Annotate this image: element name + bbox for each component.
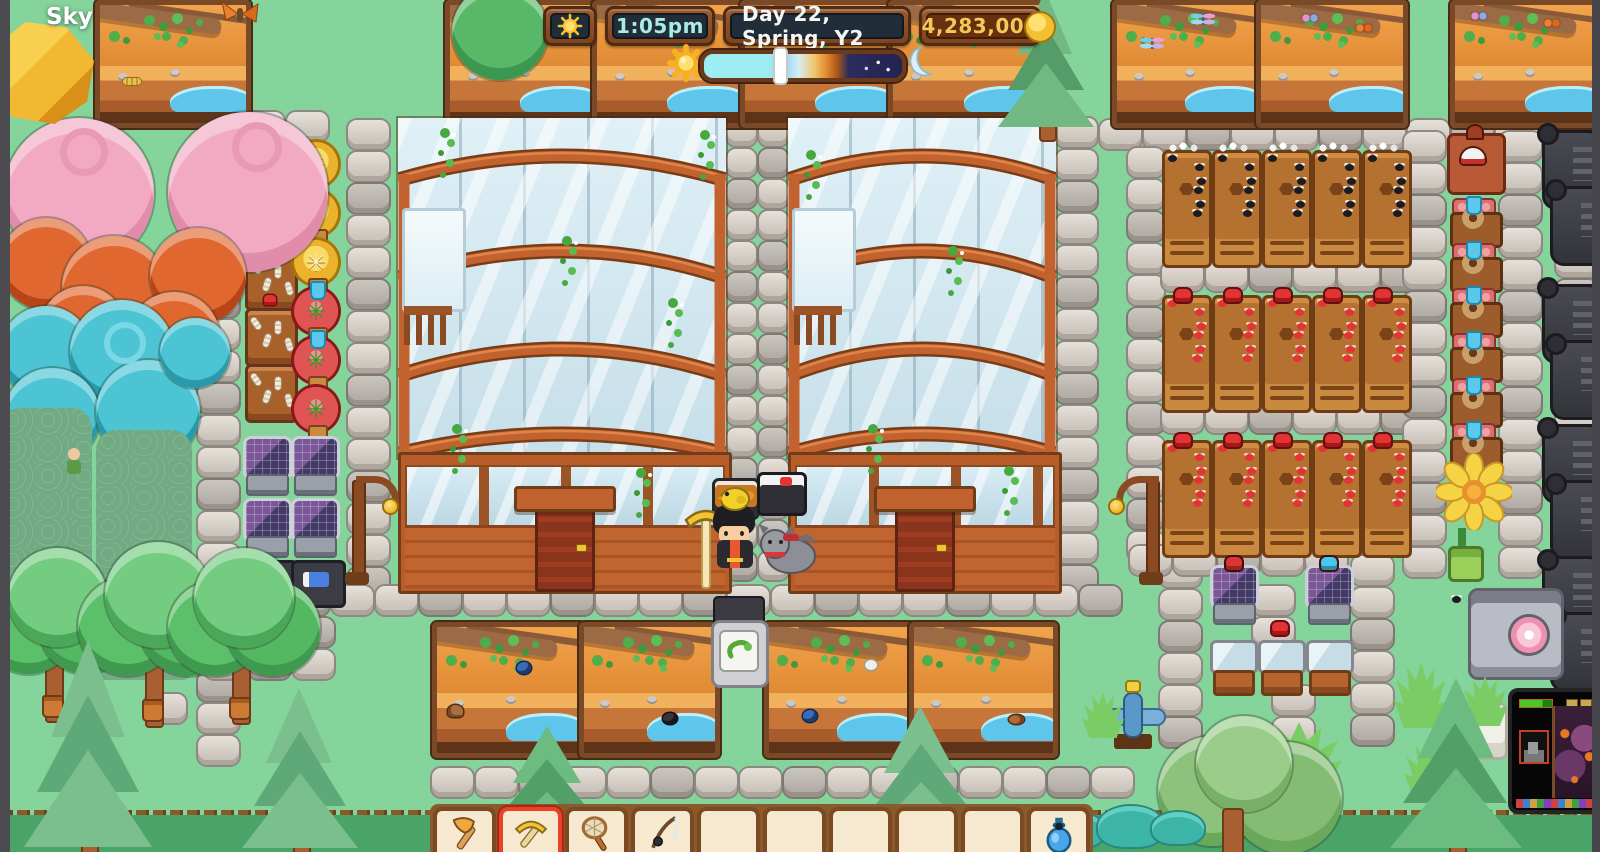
glass-table[interactable] [1258, 640, 1306, 698]
hive-slat [1220, 386, 1254, 390]
fly-icon [1394, 187, 1403, 194]
stone-tile [1352, 556, 1393, 585]
hotbar-slot-6[interactable] [763, 807, 826, 852]
red-bee-icon [1346, 346, 1355, 353]
stone-tile [1500, 324, 1541, 353]
ivy-vine [636, 468, 646, 478]
bird-companion[interactable] [716, 484, 752, 511]
leaf-decor [1160, 15, 1171, 26]
red-bee-icon [1375, 434, 1391, 447]
fly-icon [1197, 178, 1206, 185]
bee-box[interactable] [1212, 150, 1262, 268]
red-bee-icon [1197, 323, 1206, 330]
water-decor [520, 86, 601, 112]
drip-connector [1466, 286, 1482, 305]
hive-slat [1370, 531, 1404, 535]
dragonfly-icon [1191, 12, 1215, 26]
door-handle [936, 544, 947, 552]
greenhouse-door[interactable] [535, 504, 595, 592]
bug-net-icon [577, 814, 617, 852]
stone-tile [1056, 406, 1097, 435]
hotbar-slot-9[interactable] [961, 807, 1024, 852]
bug-icon [1226, 557, 1242, 570]
stone-tile [1056, 502, 1097, 531]
hotbar-slot-3-bug-net[interactable] [565, 807, 628, 852]
terrarium[interactable] [1256, 0, 1408, 128]
hotbar-slot-4-fishing-rod[interactable] [631, 807, 694, 852]
stone-tile [348, 248, 389, 277]
caterpillar-icon [123, 78, 141, 85]
grub-icon [262, 277, 272, 291]
red-bee-icon [1196, 491, 1205, 498]
bee-icon [1452, 596, 1461, 603]
incubator-machine[interactable] [291, 498, 340, 558]
incubator-machine[interactable] [1210, 565, 1259, 625]
hive-slat [1320, 241, 1354, 245]
terrarium-base [1258, 112, 1406, 123]
day-progress-track [700, 50, 906, 82]
hive-slat [1170, 386, 1204, 390]
butterfly-o-icon [1543, 17, 1561, 30]
snail-icon [448, 705, 463, 717]
hive-slat [1220, 241, 1254, 245]
table-base [1213, 670, 1255, 696]
fly-icon [1243, 210, 1252, 217]
hotbar-slot-7[interactable] [829, 807, 892, 852]
lamp-light [1110, 500, 1123, 513]
axe-icon [445, 814, 485, 852]
drip-connector [1466, 241, 1482, 260]
moon-icon [902, 46, 932, 80]
tree-swirl [104, 322, 146, 364]
red-bee-icon [1393, 355, 1402, 362]
lamp-base [1139, 572, 1163, 585]
stone-tile [1056, 214, 1097, 243]
hive-slat [1170, 531, 1204, 535]
fly-icon [1194, 187, 1203, 194]
fly-icon [1347, 178, 1356, 185]
incubator-machine[interactable] [1305, 565, 1354, 625]
hive-slat [1370, 386, 1404, 390]
leaf-decor [922, 655, 933, 666]
butterfly-o-icon [1355, 22, 1373, 35]
tree-canopy [194, 548, 294, 648]
red-bee-icon [1197, 468, 1206, 475]
terrarium-habitat [914, 627, 1053, 693]
hive-entrance [1279, 328, 1294, 340]
greenhouse-door[interactable] [895, 504, 955, 592]
stone-tile [1004, 768, 1045, 797]
pebble-decor [506, 696, 516, 704]
stone-tile [1056, 374, 1097, 403]
lamp-light [384, 500, 397, 513]
stone-tile [1500, 548, 1541, 577]
hive-slat [1320, 541, 1354, 545]
hive-entrance [1229, 473, 1244, 485]
stone-tile [784, 768, 825, 797]
bee-box[interactable] [1162, 440, 1212, 558]
red-bee-icon [1343, 500, 1352, 507]
red-bee-icon [1347, 323, 1356, 330]
fly-icon [1247, 178, 1256, 185]
dragonfly-icon [1140, 36, 1164, 50]
terrarium-base [1114, 112, 1262, 123]
stone-tile [1160, 686, 1201, 715]
hive-crate[interactable] [757, 472, 807, 516]
pebble-decor [1525, 69, 1535, 77]
day-progress-bar [700, 50, 906, 82]
fly-icon [1395, 164, 1404, 171]
stone-tile [198, 448, 239, 477]
water-decor [647, 713, 720, 741]
beetle-blue-icon [803, 710, 817, 722]
screen-edge-right [1592, 0, 1600, 852]
terrarium-habitat [1117, 5, 1259, 66]
stone-tile [759, 180, 788, 208]
pine-tier [1390, 768, 1522, 848]
pebble-decor [647, 696, 657, 704]
fly-icon [1244, 187, 1253, 194]
stone-tile [1500, 228, 1541, 257]
stone-tile [1048, 768, 1089, 797]
fly-icon [1293, 210, 1302, 217]
stone-tile [1128, 436, 1164, 465]
hive-entrance [1279, 183, 1294, 195]
hive-slat [1270, 531, 1304, 535]
red-bee-icon [1275, 289, 1291, 302]
hotbar-slot-5[interactable] [697, 807, 760, 852]
leaf-decor [1270, 31, 1281, 42]
money-panel: 4,283,009 [919, 6, 1041, 46]
fly-icon [1196, 201, 1205, 208]
player-belt [727, 558, 743, 562]
fly-icon [1345, 164, 1354, 171]
red-bee-icon [1272, 622, 1288, 635]
hotbar-slot-8[interactable] [895, 807, 958, 852]
red-bee-icon [1225, 434, 1241, 447]
stone-tile [1253, 586, 1294, 615]
pebble-decor [170, 69, 180, 77]
stone-tile [727, 397, 756, 425]
hotbar-slot-10-blue-bottle[interactable] [1027, 807, 1090, 852]
stone-tile [1128, 404, 1164, 433]
pine-tier [998, 63, 1094, 127]
fly-icon [1318, 155, 1327, 162]
terrarium-base [581, 742, 717, 753]
grub-icon [250, 316, 262, 330]
red-bee-icon [1346, 491, 1355, 498]
stone-tile [652, 768, 693, 797]
player-body[interactable] [717, 540, 753, 568]
stone-tile [432, 768, 473, 797]
fly-icon [1195, 164, 1204, 171]
hive-slat [1220, 541, 1254, 545]
red-bee-icon [1325, 289, 1341, 302]
pump-cap [1125, 680, 1141, 693]
npc-villager[interactable] [66, 448, 82, 476]
time-panel: 1:05pm [605, 6, 715, 46]
stone-tile [1128, 244, 1164, 273]
red-bee-icon [1196, 346, 1205, 353]
bee-box[interactable] [1262, 150, 1312, 268]
bee-box[interactable] [1312, 440, 1362, 558]
stone-tile [727, 273, 756, 301]
red-bee-icon [1294, 332, 1303, 339]
grub-icon [250, 372, 262, 386]
stone-tile [1092, 768, 1133, 797]
branch-decor [579, 624, 695, 658]
fly-icon [1344, 187, 1353, 194]
red-bee-icon [1394, 477, 1403, 484]
money-amount: 4,283,009 [926, 13, 1034, 39]
fish-icon [1009, 715, 1024, 724]
tap-bucket[interactable] [229, 697, 251, 720]
bee-box[interactable] [1212, 440, 1262, 558]
hive-slat [1320, 396, 1354, 400]
pebble-decor [964, 69, 974, 77]
bee-box[interactable] [1362, 440, 1412, 558]
incubator-base [294, 536, 337, 558]
water-decor [1525, 86, 1600, 112]
grub-icon [275, 321, 281, 334]
bee-box[interactable] [1312, 295, 1362, 413]
calendar-date: Day 22, Spring, Y2 [730, 13, 904, 39]
terrarium-habitat [769, 627, 910, 693]
red-bee-icon [1193, 500, 1202, 507]
fly-icon [1294, 187, 1303, 194]
fly-icon [1297, 178, 1306, 185]
glass-table[interactable] [1210, 640, 1258, 698]
stone-tile [1500, 260, 1541, 289]
stone-tile [1056, 534, 1097, 563]
stone-tile [727, 366, 756, 394]
press-head-machine[interactable] [1447, 133, 1506, 195]
pump-body [1123, 692, 1143, 738]
flower[interactable] [1436, 454, 1512, 530]
hive-slat [1270, 396, 1304, 400]
npc-body [67, 460, 81, 474]
stone-tile [198, 416, 239, 445]
hive-slat [1170, 241, 1204, 245]
stone-tile [1056, 278, 1097, 307]
ivy-vine [700, 130, 710, 140]
hotbar-slot-2-pickaxe[interactable] [499, 807, 562, 852]
stone-tile [1056, 342, 1097, 371]
hud-bar: 1:05pm Day 22, Spring, Y2 4,283,009 [543, 6, 1041, 46]
greenhouse-balcony-rail [794, 306, 842, 345]
red-bee-icon [1193, 355, 1202, 362]
stone-tile [348, 280, 389, 309]
red-bee-icon [1175, 289, 1191, 302]
terrarium-substrate [100, 66, 246, 113]
stone-tile [759, 397, 788, 425]
tree-trunk [1222, 808, 1244, 852]
fly-swarm [1166, 142, 1202, 154]
sun-icon [550, 13, 590, 39]
leaf-decor [109, 31, 120, 42]
hive-slat [1220, 396, 1254, 400]
fly-icon [1397, 178, 1406, 185]
stone-tile [348, 440, 389, 469]
stone-tile [1128, 372, 1164, 401]
leaf-decor [1499, 15, 1510, 26]
fly-icon [1396, 201, 1405, 208]
hotbar-slot-1-axe[interactable] [433, 807, 496, 852]
red-bug-icon [264, 295, 276, 305]
clock-time: 1:05pm [612, 13, 708, 39]
player-eyes [724, 531, 728, 536]
red-bee-icon [1295, 454, 1304, 461]
ivy-vine [562, 236, 572, 246]
ivy-vine [668, 298, 678, 308]
fly-icon [1393, 210, 1402, 217]
incubator-base [1308, 603, 1351, 625]
red-bee-icon [1247, 468, 1256, 475]
red-bee-icon [1243, 500, 1252, 507]
grinder-machine[interactable] [1468, 588, 1564, 680]
drip-connector [1466, 376, 1482, 395]
window-title: Sky [46, 4, 93, 30]
red-bee-icon [1395, 309, 1404, 316]
butterfly-p-icon [1470, 10, 1488, 23]
red-bee-icon [1297, 468, 1306, 475]
branch-decor [95, 1, 223, 35]
stone-tile [1500, 196, 1541, 225]
stone-tile [1056, 182, 1097, 211]
pebble-decor [468, 73, 478, 81]
pine-tier [242, 773, 358, 848]
hive-slat [1220, 251, 1254, 255]
door-awning [514, 486, 616, 512]
player-scarf [730, 540, 740, 568]
tree-canopy [1196, 716, 1292, 812]
pebble-decor [1185, 69, 1195, 77]
water-decor [1185, 86, 1264, 112]
hive-slat [1170, 396, 1204, 400]
greenhouse-skylight [792, 208, 856, 312]
fly-icon [1268, 155, 1277, 162]
red-bee-icon [1297, 323, 1306, 330]
stone-tile [727, 428, 756, 456]
red-bee-icon [1397, 323, 1406, 330]
stone-tile [1500, 420, 1541, 449]
date-panel: Day 22, Spring, Y2 [723, 6, 911, 46]
pip-health-bar [1519, 699, 1553, 708]
incubator-machine[interactable] [243, 436, 292, 496]
red-bee-icon [1396, 491, 1405, 498]
gold-boulder[interactable] [0, 22, 94, 124]
bee-box[interactable] [1262, 440, 1312, 558]
stone-tile [1500, 356, 1541, 385]
drip-connector [1466, 421, 1482, 440]
red-bee-icon [1245, 454, 1254, 461]
terrarium-substrate [1117, 66, 1259, 113]
worm-dispenser[interactable] [711, 596, 763, 700]
fly-swarm [1316, 142, 1352, 154]
fly-icon [1246, 201, 1255, 208]
red-bee-icon [1395, 454, 1404, 461]
terrarium-substrate [584, 693, 715, 743]
red-bee-icon [1293, 500, 1302, 507]
weather-panel [543, 6, 597, 46]
red-bee-icon [1375, 289, 1391, 302]
game-viewport: ✳✳✳✳✳✳ Sky 1:05pm Day 22, Spring, Y2 4,2… [0, 0, 1600, 852]
fly-icon [1168, 155, 1177, 162]
bee-box[interactable] [1262, 295, 1312, 413]
bee-box[interactable] [1162, 150, 1212, 268]
door-awning [874, 486, 976, 512]
bug-icon [1321, 557, 1337, 570]
screen-edge-left [0, 0, 10, 852]
fly-icon [1245, 164, 1254, 171]
bee-box[interactable] [1162, 295, 1212, 413]
hive-slat [1270, 241, 1304, 245]
bee-box[interactable] [1362, 150, 1412, 268]
bee-box[interactable] [1362, 295, 1412, 413]
tap-bucket[interactable] [142, 699, 164, 722]
stone-tile [1056, 246, 1097, 275]
fly-icon [1346, 201, 1355, 208]
bee-box[interactable] [1212, 295, 1262, 413]
incubator-machine[interactable] [291, 436, 340, 496]
terrarium[interactable] [579, 622, 720, 758]
red-bee-icon [1245, 309, 1254, 316]
pebble-decor [1329, 69, 1339, 77]
pebble-decor [981, 696, 991, 704]
red-bee-icon [1195, 309, 1204, 316]
stone-tile [740, 768, 781, 797]
beetle-dark-icon [663, 713, 677, 724]
stone-tile [348, 312, 389, 341]
hive-entrance [1329, 183, 1344, 195]
table-base [1261, 670, 1303, 696]
red-bee-icon [1393, 500, 1402, 507]
stone-tile [348, 376, 389, 405]
spinner-machine[interactable]: ✳ [291, 385, 341, 439]
terrarium[interactable] [1112, 0, 1264, 128]
terrarium[interactable] [1450, 0, 1600, 128]
day-progress-marker [773, 47, 788, 85]
leaf-decor [592, 655, 603, 666]
stone-tile [348, 184, 389, 213]
red-bee-icon [1344, 332, 1353, 339]
water-decor [170, 86, 251, 112]
tree-swirl [60, 128, 108, 176]
stone-tile [727, 180, 756, 208]
stone-tile [727, 335, 756, 363]
fly-icon [1295, 164, 1304, 171]
branch-decor [432, 623, 558, 658]
stone-tile [727, 242, 756, 270]
red-bee-icon [1244, 332, 1253, 339]
water-decor [1329, 86, 1408, 112]
lamp-base [345, 572, 369, 585]
grub-icon [275, 377, 281, 390]
hotbar [430, 804, 1093, 852]
red-bug-icon [780, 477, 792, 486]
drip-connector [310, 281, 326, 300]
stone-tile [1128, 180, 1164, 209]
hive-slat [1320, 386, 1354, 390]
glass-table[interactable] [1306, 640, 1354, 698]
cat-companion[interactable] [755, 522, 817, 574]
fly-icon [1343, 210, 1352, 217]
hive-entrance [1229, 183, 1244, 195]
red-bee-icon [1394, 332, 1403, 339]
pip-inventory-box [1519, 730, 1549, 764]
bee-box[interactable] [1312, 150, 1362, 268]
stone-tile [759, 335, 788, 363]
